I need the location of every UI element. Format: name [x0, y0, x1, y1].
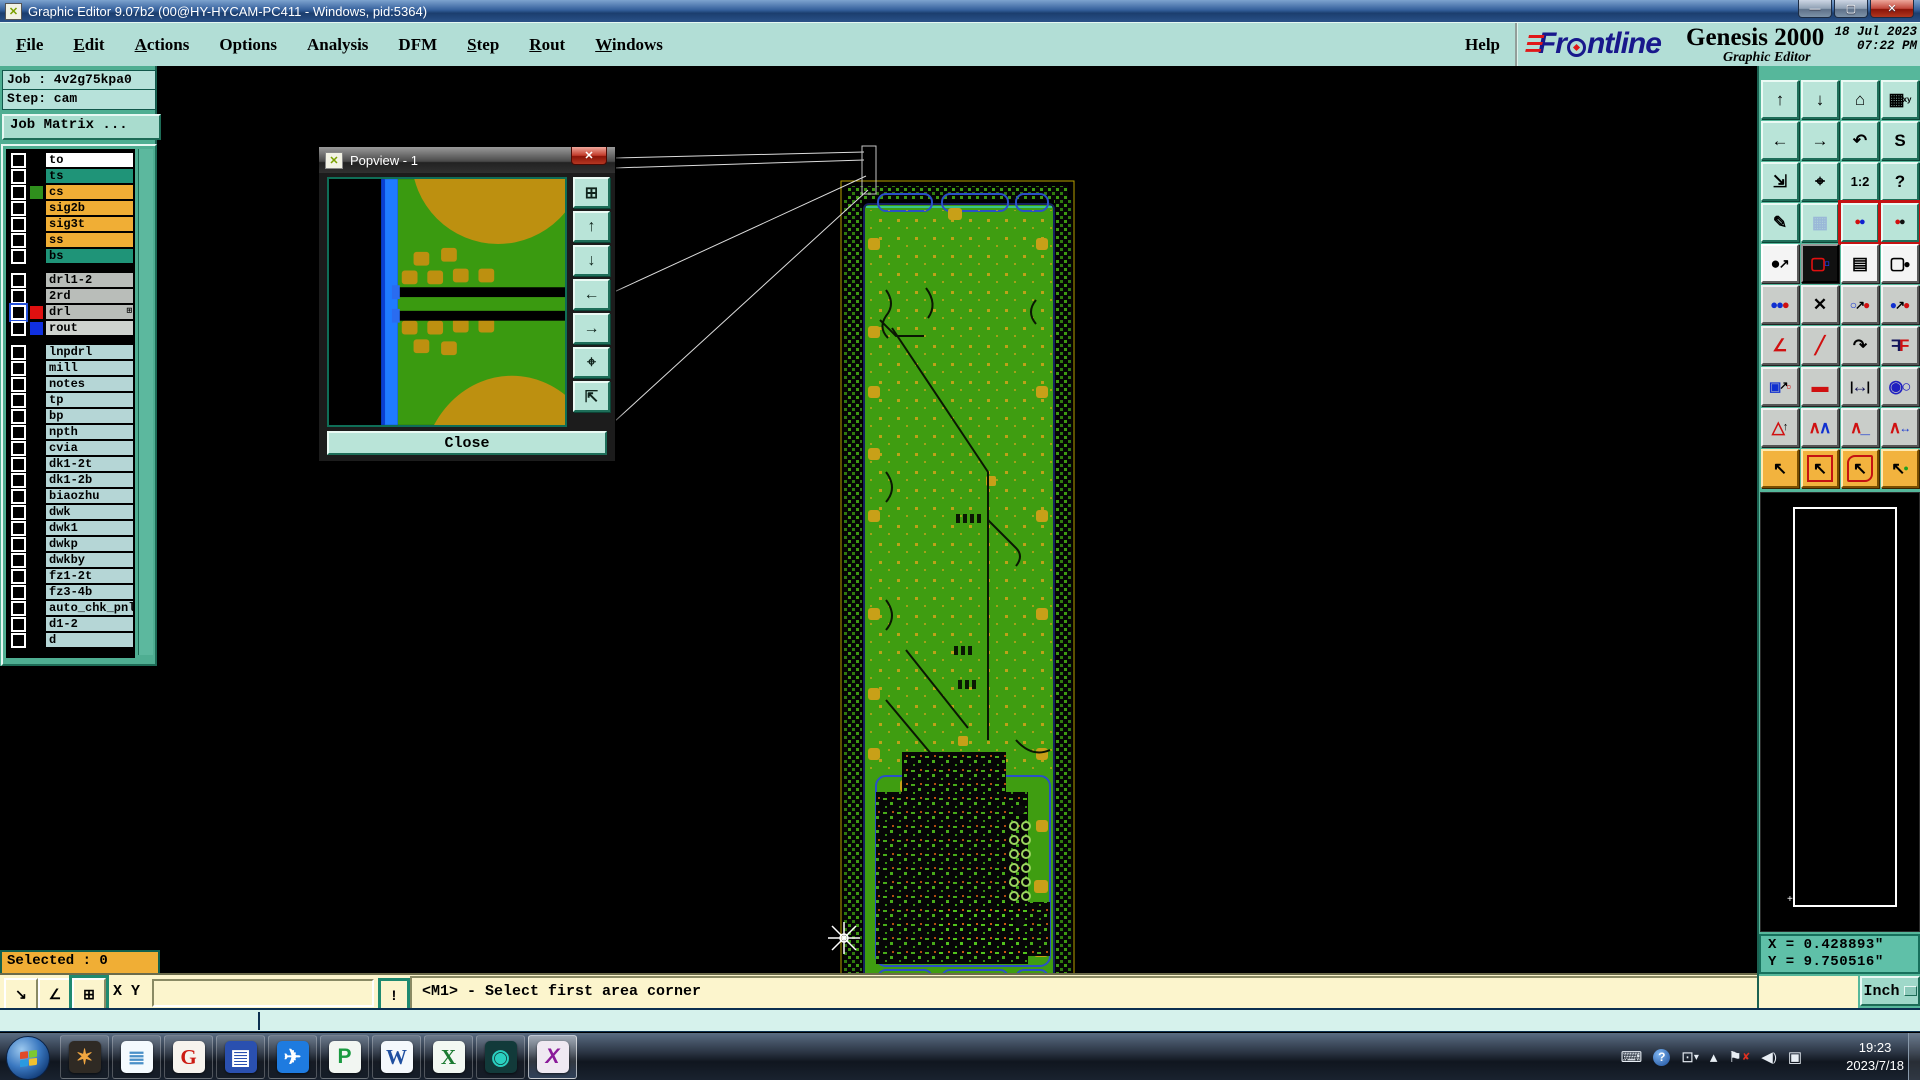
pcb-board[interactable] [840, 180, 1076, 1012]
layer-label[interactable]: lnpdrl [46, 345, 133, 359]
layer-color-swatch [30, 506, 43, 519]
layer-row-cs[interactable]: cs [6, 184, 135, 200]
layer-checkbox[interactable] [11, 153, 26, 168]
layer-row-drl1-2[interactable]: drl1-2 [6, 272, 135, 288]
layer-checkbox[interactable] [11, 569, 26, 584]
layer-group-3: lnpdrlmillnotestpbpnpthcviadk1-2tdk1-2bb… [6, 344, 135, 648]
taskbar-app-dingtalk[interactable]: ✈ [268, 1035, 317, 1079]
layer-row-tp[interactable]: tp [6, 392, 135, 408]
grid-toggle-button[interactable]: ▦ [1801, 203, 1839, 242]
layer-color-swatch [30, 274, 43, 287]
layer-color-swatch [30, 474, 43, 487]
layer-color-swatch [30, 154, 43, 167]
product-name: Genesis 2000 [1686, 24, 1824, 52]
taskbar-apps: ✶≣G▤✈PWX◉X [60, 1035, 577, 1079]
net-compare-button[interactable]: ●● [1881, 203, 1919, 242]
layer-color-swatch [30, 538, 43, 551]
layer-checkbox[interactable] [11, 377, 26, 392]
layer-checkbox[interactable] [11, 537, 26, 552]
layer-row-dk1-2b[interactable]: dk1-2b [6, 472, 135, 488]
add-polygon-wide-button[interactable]: ∧↔ [1881, 408, 1919, 447]
layer-color-swatch [30, 290, 43, 303]
taskbar-app-genesis-icon: G [173, 1041, 205, 1073]
graphic-editor-window: ✕ Graphic Editor 9.07b2 (00@HY-HYCAM-PC4… [0, 0, 1920, 1080]
layer-color-swatch [30, 170, 43, 183]
frontline-logo: ☰Frntline [1524, 27, 1661, 61]
layer-label[interactable]: notes [46, 377, 133, 391]
show-hidden-icons[interactable]: ▴ [1710, 1048, 1718, 1066]
taskbar-app-exceed-icon: X [537, 1041, 569, 1073]
measure-ruler-button[interactable]: ▤ [1841, 244, 1879, 283]
taskbar-app-cam350-icon: ▤ [225, 1041, 257, 1073]
select-net-button[interactable]: ↖● [1881, 449, 1919, 488]
option-menu-icon [1904, 986, 1917, 996]
taskbar-clock[interactable]: 19:23 2023/7/18 [1846, 1039, 1904, 1075]
taskbar-app-excel[interactable]: X [424, 1035, 473, 1079]
select-polygon-button[interactable]: ↖ [1841, 449, 1879, 488]
taskbar-app-protel-icon: P [329, 1041, 361, 1073]
layer-row-notes[interactable]: notes [6, 376, 135, 392]
layer-checkbox[interactable] [11, 233, 26, 248]
pan-right-button[interactable]: → [1801, 121, 1839, 160]
help-button[interactable]: ? [1881, 162, 1919, 201]
brand-panel: ☰Frntline Genesis 2000 Graphic Editor 18… [1515, 23, 1920, 67]
windows-taskbar: ✶≣G▤✈PWX◉X ⌨?⊡▾▴⚑✘◀)▣ 19:23 2023/7/18 [0, 1032, 1920, 1080]
menu-dfm[interactable]: DFM [398, 35, 437, 55]
menu-analysis[interactable]: Analysis [307, 35, 368, 55]
xy-coordinate-input[interactable] [152, 979, 374, 1007]
layer-list-frame: totscssig2bsig3tssbsdrl1-22rddrl⊞routlnp… [1, 144, 157, 666]
date-text: 18 Jul 2023 [1834, 25, 1917, 39]
product-subtitle: Graphic Editor [1723, 50, 1811, 66]
layer-color-swatch [30, 362, 43, 375]
prompt-bar: <M1> - Select first area corner [410, 976, 1769, 1011]
units-label: Inch [1863, 983, 1899, 1000]
layer-checkbox[interactable] [11, 393, 26, 408]
delete-object-button[interactable]: ✕ [1801, 285, 1839, 324]
layer-row-dwk1[interactable]: dwk1 [6, 520, 135, 536]
popview-app-icon: ✕ [325, 152, 343, 169]
toolbar-grid: ↑↓⌂▦xy←→↶S⇲⌖1:2?✎▦●●●●●↗▢▫▤▢●●●●✕○↗●●↗●∠… [1761, 80, 1919, 488]
measure-angle-button[interactable]: ∠ [1761, 326, 1799, 365]
taskbar-app-notepad[interactable]: ≣ [112, 1035, 161, 1079]
layer-checkbox[interactable] [11, 409, 26, 424]
layer-row-sig2b[interactable]: sig2b [6, 200, 135, 216]
layer-row-ts[interactable]: ts [6, 168, 135, 184]
units-select[interactable]: Inch [1860, 976, 1920, 1006]
measure-slant-button[interactable]: ╱ [1801, 326, 1839, 365]
layer-row-fz1-2t[interactable]: fz1-2t [6, 568, 135, 584]
layer-checkbox[interactable] [11, 201, 26, 216]
layer-list: totscssig2bsig3tssbsdrl1-22rddrl⊞routlnp… [6, 149, 135, 658]
volume-tray-icon[interactable]: ◀) [1761, 1048, 1777, 1066]
cursor-coordinates: X = 0.428893" Y = 9.750516" [1759, 934, 1920, 974]
layer-group-2: drl1-22rddrl⊞rout [6, 272, 135, 336]
layer-row-ss[interactable]: ss [6, 232, 135, 248]
popview-image[interactable] [327, 177, 567, 427]
menu-options[interactable]: Options [219, 35, 277, 55]
taskbar-app-media[interactable]: ◉ [476, 1035, 525, 1079]
layer-color-swatch [30, 634, 43, 647]
layer-color-swatch [30, 490, 43, 503]
keyboard-tray-icon[interactable]: ⌨ [1621, 1048, 1643, 1066]
job-side-panel: Job : 4v2g75kpa0 Step: cam Job Matrix ..… [0, 66, 157, 666]
taskbar-app-genesis[interactable]: G [164, 1035, 213, 1079]
layer-label[interactable]: dwkby [46, 553, 133, 567]
menu-actions[interactable]: Actions [135, 35, 190, 55]
layer-checkbox[interactable] [11, 249, 26, 264]
layer-color-swatch [30, 306, 43, 319]
layer-checkbox[interactable] [11, 305, 26, 320]
navigator-origin-mark: + [1787, 894, 1793, 905]
layer-row-bs[interactable]: bs [6, 248, 135, 264]
cursor-x: X = 0.428893" [1768, 937, 1918, 954]
layer-color-swatch [30, 322, 43, 335]
layer-checkbox[interactable] [11, 601, 26, 616]
chain-select-button[interactable]: ●●● [1761, 285, 1799, 324]
datetime-display: 18 Jul 2023 07:22 PM [1834, 25, 1917, 53]
layer-label[interactable]: dk1-2b [46, 473, 133, 487]
layer-label[interactable]: sig2b [46, 201, 133, 215]
pan-up-icon[interactable]: ↑ [573, 211, 610, 242]
layer-color-swatch [30, 458, 43, 471]
cursor-y: Y = 9.750516" [1768, 954, 1918, 971]
layer-row-fz3-4b[interactable]: fz3-4b [6, 584, 135, 600]
title-bar: ✕ Graphic Editor 9.07b2 (00@HY-HYCAM-PC4… [0, 0, 1920, 22]
layer-scrollbar[interactable] [138, 149, 153, 655]
menu-step[interactable]: Step [467, 35, 499, 55]
clock-time: 19:23 [1846, 1039, 1904, 1057]
layer-color-swatch [30, 378, 43, 391]
layer-color-swatch [30, 410, 43, 423]
layer-checkbox[interactable] [11, 361, 26, 376]
layer-color-swatch [30, 346, 43, 359]
menu-bar: FileEditActionsOptionsAnalysisDFMStepRou… [0, 22, 1920, 68]
layer-color-swatch [30, 554, 43, 567]
popview-close-button[interactable]: Close [327, 431, 607, 455]
taskbar-app-shell-icon: ✶ [69, 1041, 101, 1073]
start-button[interactable] [6, 1036, 50, 1080]
layer-checkbox[interactable] [11, 185, 26, 200]
layer-checkbox[interactable] [11, 553, 26, 568]
layer-label[interactable]: ts [46, 169, 133, 183]
clock-date: 2023/7/18 [1846, 1057, 1904, 1075]
layer-checkbox[interactable] [11, 169, 26, 184]
mirror-object-button[interactable]: FF [1881, 326, 1919, 365]
layer-row-bp[interactable]: bp [6, 408, 135, 424]
layer-label[interactable]: drl⊞ [46, 305, 133, 319]
layer-checkbox[interactable] [11, 425, 26, 440]
layer-label[interactable]: fz3-4b [46, 585, 133, 599]
windows-flag-icon [20, 1049, 37, 1066]
logo-speedlines-icon: ☰ [1524, 30, 1540, 58]
select-symbol-button[interactable]: ●↗ [1761, 244, 1799, 283]
layer-checkbox[interactable] [11, 633, 26, 648]
step-sequence-button[interactable]: S [1881, 121, 1919, 160]
layer-checkbox[interactable] [11, 489, 26, 504]
layer-color-swatch [30, 202, 43, 215]
layer-group-1: totscssig2bsig3tssbs [6, 152, 135, 264]
taskbar-app-protel[interactable]: P [320, 1035, 369, 1079]
layer-checkbox[interactable] [11, 521, 26, 536]
layer-label[interactable]: fz1-2t [46, 569, 133, 583]
layer-label[interactable]: npth [46, 425, 133, 439]
layer-color-swatch [30, 234, 43, 247]
zoom-out-icon[interactable]: ⇱ [573, 381, 610, 412]
window-tray-icon[interactable]: ⊡▾ [1681, 1048, 1699, 1066]
layer-label[interactable]: bs [46, 249, 133, 263]
add-polygon-double-button[interactable]: ∧∧ [1801, 408, 1839, 447]
menu-rout[interactable]: Rout [529, 35, 565, 55]
app-icon: ✕ [5, 3, 22, 20]
layer-label[interactable]: sig3t [46, 217, 133, 231]
job-matrix-button[interactable]: Job Matrix ... [2, 114, 161, 140]
network-tray-icon[interactable]: ▣ [1788, 1048, 1802, 1066]
minimize-button[interactable]: — [1798, 0, 1832, 18]
layer-row-dk1-2t[interactable]: dk1-2t [6, 456, 135, 472]
layer-row-rout[interactable]: rout [6, 320, 135, 336]
pan-up-button[interactable]: ↑ [1761, 80, 1799, 119]
layer-marker-icon: ⊞ [127, 306, 132, 317]
menu-items: FileEditActionsOptionsAnalysisDFMStepRou… [0, 35, 663, 55]
layer-color-swatch [30, 186, 43, 199]
pan-right-icon[interactable]: → [573, 313, 610, 344]
layer-row-drl[interactable]: drl⊞ [6, 304, 135, 320]
pan-down-button[interactable]: ↓ [1801, 80, 1839, 119]
step-name-box: Step: cam [2, 89, 156, 110]
popview-title: Popview - 1 [350, 153, 418, 168]
layer-label[interactable]: d [46, 633, 133, 647]
select-frame-button[interactable]: ↖ [1801, 449, 1839, 488]
setup-tools-button[interactable]: ✎ [1761, 203, 1799, 242]
layer-label[interactable]: biaozhu [46, 489, 133, 503]
select-single-button[interactable]: ↖ [1761, 449, 1799, 488]
menu-file[interactable]: File [16, 35, 43, 55]
action-center-flag-icon[interactable]: ⚑✘ [1728, 1048, 1750, 1066]
layer-color-swatch [30, 586, 43, 599]
layer-color-swatch [30, 618, 43, 631]
layer-label[interactable]: to [46, 153, 133, 167]
layer-row-dwkp[interactable]: dwkp [6, 536, 135, 552]
rotate-object-button[interactable]: ↷ [1841, 326, 1879, 365]
menu-edit[interactable]: Edit [73, 35, 104, 55]
layer-checkbox[interactable] [11, 473, 26, 488]
command-history-button[interactable]: ! [378, 978, 410, 1012]
layer-row-sig3t[interactable]: sig3t [6, 216, 135, 232]
layer-label[interactable]: dk1-2t [46, 457, 133, 471]
layer-label[interactable]: ss [46, 233, 133, 247]
layer-color-swatch [30, 250, 43, 263]
taskbar-app-shell[interactable]: ✶ [60, 1035, 109, 1079]
show-desktop-button[interactable] [1908, 1033, 1920, 1080]
surface-edit-button[interactable]: ◉○ [1881, 367, 1919, 406]
layer-label[interactable]: cs [46, 185, 133, 199]
tile-windows-button[interactable]: ⊞ [72, 978, 106, 1010]
zoom-in-icon[interactable]: ⌖ [573, 347, 610, 378]
layer-checkbox[interactable] [11, 273, 26, 288]
taskbar-app-notepad-icon: ≣ [121, 1041, 153, 1073]
layer-row-cvia[interactable]: cvia [6, 440, 135, 456]
layer-row-dwkby[interactable]: dwkby [6, 552, 135, 568]
system-tray: ⌨?⊡▾▴⚑✘◀)▣ [1621, 1033, 1802, 1080]
popview-toolbar: ⊞↑↓←→⌖⇱ [573, 177, 610, 412]
previous-view-button[interactable]: ↶ [1841, 121, 1879, 160]
layer-label[interactable]: d1-2 [46, 617, 133, 631]
zoom-center-button[interactable]: ⌖ [1801, 162, 1839, 201]
copy-to-layer-button[interactable]: ▣↗▫ [1761, 367, 1799, 406]
layer-row-lnpdrl[interactable]: lnpdrl [6, 344, 135, 360]
layer-label[interactable]: 2rd [46, 289, 133, 303]
add-polygon-arrow-button[interactable]: △↑ [1761, 408, 1799, 447]
layer-label[interactable]: mill [46, 361, 133, 375]
menu-help[interactable]: Help [1465, 23, 1500, 67]
zoom-area-mode-button[interactable]: ↘ [4, 978, 38, 1010]
layer-checkbox[interactable] [11, 289, 26, 304]
layer-row-npth[interactable]: npth [6, 424, 135, 440]
layer-color-swatch [30, 394, 43, 407]
tools-side-panel: ↑↓⌂▦xy←→↶S⇲⌖1:2?✎▦●●●●●↗▢▫▤▢●●●●✕○↗●●↗●∠… [1757, 66, 1920, 1008]
help-tray-icon[interactable]: ? [1653, 1049, 1670, 1066]
layer-color-swatch [30, 442, 43, 455]
layer-checkbox[interactable] [11, 217, 26, 232]
stretch-line-button[interactable]: ▬ [1801, 367, 1839, 406]
detach-view-icon[interactable]: ⊞ [573, 177, 610, 208]
layer-color-swatch [30, 426, 43, 439]
layer-row-2rd[interactable]: 2rd [6, 288, 135, 304]
layer-checkbox[interactable] [11, 345, 26, 360]
layer-checkbox[interactable] [11, 617, 26, 632]
shape-edit-button[interactable]: ▢▫ [1801, 244, 1839, 283]
layer-color-swatch [30, 522, 43, 535]
layer-checkbox[interactable] [11, 505, 26, 520]
layer-checkbox[interactable] [11, 321, 26, 336]
layer-label[interactable]: dwk1 [46, 521, 133, 535]
move-object-button[interactable]: ●↗● [1881, 285, 1919, 324]
layer-row-dwk[interactable]: dwk [6, 504, 135, 520]
layer-row-mill[interactable]: mill [6, 360, 135, 376]
measure-distance-button[interactable]: |↔| [1841, 367, 1879, 406]
popview-close-icon[interactable]: ✕ [571, 147, 607, 165]
layer-label[interactable]: dwk [46, 505, 133, 519]
layer-row-d[interactable]: d [6, 632, 135, 648]
angle-mode-button[interactable]: ∠ [38, 978, 72, 1010]
layer-label[interactable]: tp [46, 393, 133, 407]
layer-checkbox[interactable] [11, 457, 26, 472]
zoom-fit-button[interactable]: ⇲ [1761, 162, 1799, 201]
popview-title-bar[interactable]: ✕ Popview - 1 ✕ [319, 147, 615, 173]
menu-windows[interactable]: Windows [595, 35, 663, 55]
taskbar-app-word[interactable]: W [372, 1035, 421, 1079]
layer-row-d1-2[interactable]: d1-2 [6, 616, 135, 632]
close-button[interactable]: ✕ [1870, 0, 1914, 18]
select-dashed-button[interactable]: ▢● [1881, 244, 1919, 283]
layer-label[interactable]: bp [46, 409, 133, 423]
time-text: 07:22 PM [1834, 39, 1917, 53]
layer-checkbox[interactable] [11, 441, 26, 456]
pan-down-icon[interactable]: ↓ [573, 245, 610, 276]
taskbar-app-dingtalk-icon: ✈ [277, 1041, 309, 1073]
graphics-canvas[interactable] [0, 66, 1757, 1008]
net-highlight-button[interactable]: ●● [1841, 203, 1879, 242]
navigator-viewport[interactable] [1793, 507, 1897, 907]
layer-label[interactable]: dwkp [46, 537, 133, 551]
overview-navigator[interactable]: + [1760, 492, 1920, 932]
restore-button[interactable]: ▢ [1834, 0, 1868, 18]
window-title: Graphic Editor 9.07b2 (00@HY-HYCAM-PC411… [28, 4, 427, 19]
job-name-box: Job : 4v2g75kpa0 [2, 70, 156, 91]
layer-color-swatch [30, 218, 43, 231]
layer-label[interactable]: cvia [46, 441, 133, 455]
layer-label[interactable]: auto_chk_pnl [46, 601, 133, 615]
pan-left-button[interactable]: ← [1761, 121, 1799, 160]
layer-label[interactable]: drl1-2 [46, 273, 133, 287]
layer-row-biaozhu[interactable]: biaozhu [6, 488, 135, 504]
layer-label[interactable]: rout [46, 321, 133, 335]
taskbar-app-media-icon: ◉ [485, 1041, 517, 1073]
command-row: ↘∠⊞ X Y : ! <M1> - Select first area cor… [0, 973, 1757, 1010]
layer-checkbox[interactable] [11, 585, 26, 600]
taskbar-app-exceed[interactable]: X [528, 1035, 577, 1079]
taskbar-app-word-icon: W [381, 1041, 413, 1073]
zoom-scale-button[interactable]: 1:2 [1841, 162, 1879, 201]
message-strip [0, 1008, 1920, 1032]
units-spacer [1759, 976, 1858, 1008]
taskbar-app-excel-icon: X [433, 1041, 465, 1073]
add-polygon-base-button[interactable]: ∧_ [1841, 408, 1879, 447]
pan-left-icon[interactable]: ← [573, 279, 610, 310]
selected-count-box: Selected : 0 [0, 950, 160, 975]
layer-row-to[interactable]: to [6, 152, 135, 168]
popview-window: ✕ Popview - 1 ✕ ⊞↑↓←→⌖⇱ Clo [318, 146, 616, 462]
home-view-button[interactable]: ⌂ [1841, 80, 1879, 119]
layer-color-swatch [30, 602, 43, 615]
layer-color-swatch [30, 570, 43, 583]
taskbar-app-cam350[interactable]: ▤ [216, 1035, 265, 1079]
layer-row-auto_chk_pnl[interactable]: auto_chk_pnl [6, 600, 135, 616]
window-xy-button[interactable]: ▦xy [1881, 80, 1919, 119]
copy-object-button[interactable]: ○↗● [1841, 285, 1879, 324]
